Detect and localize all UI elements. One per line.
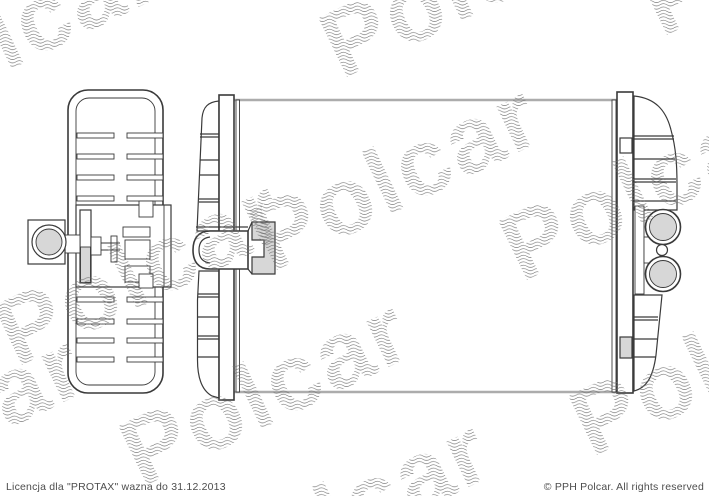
heater-core-technical-drawing: Polcar Polcar Polcar Polcar Polcar Polca… [0, 0, 709, 496]
watermark-text: Polcar [624, 0, 709, 56]
license-text: Licencja dla "PROTAX" wazna do 31.12.201… [6, 481, 226, 493]
copyright-text: © PPH Polcar. All rights reserved [544, 481, 704, 493]
center-bolt-hole [657, 245, 668, 256]
inlet-port-opening [36, 229, 62, 255]
watermark-layer: Polcar Polcar Polcar Polcar Polcar Polca… [0, 0, 709, 496]
lower-port-opening [650, 261, 677, 288]
catalog-illustration-page: Polcar Polcar Polcar Polcar Polcar Polca… [0, 0, 709, 496]
